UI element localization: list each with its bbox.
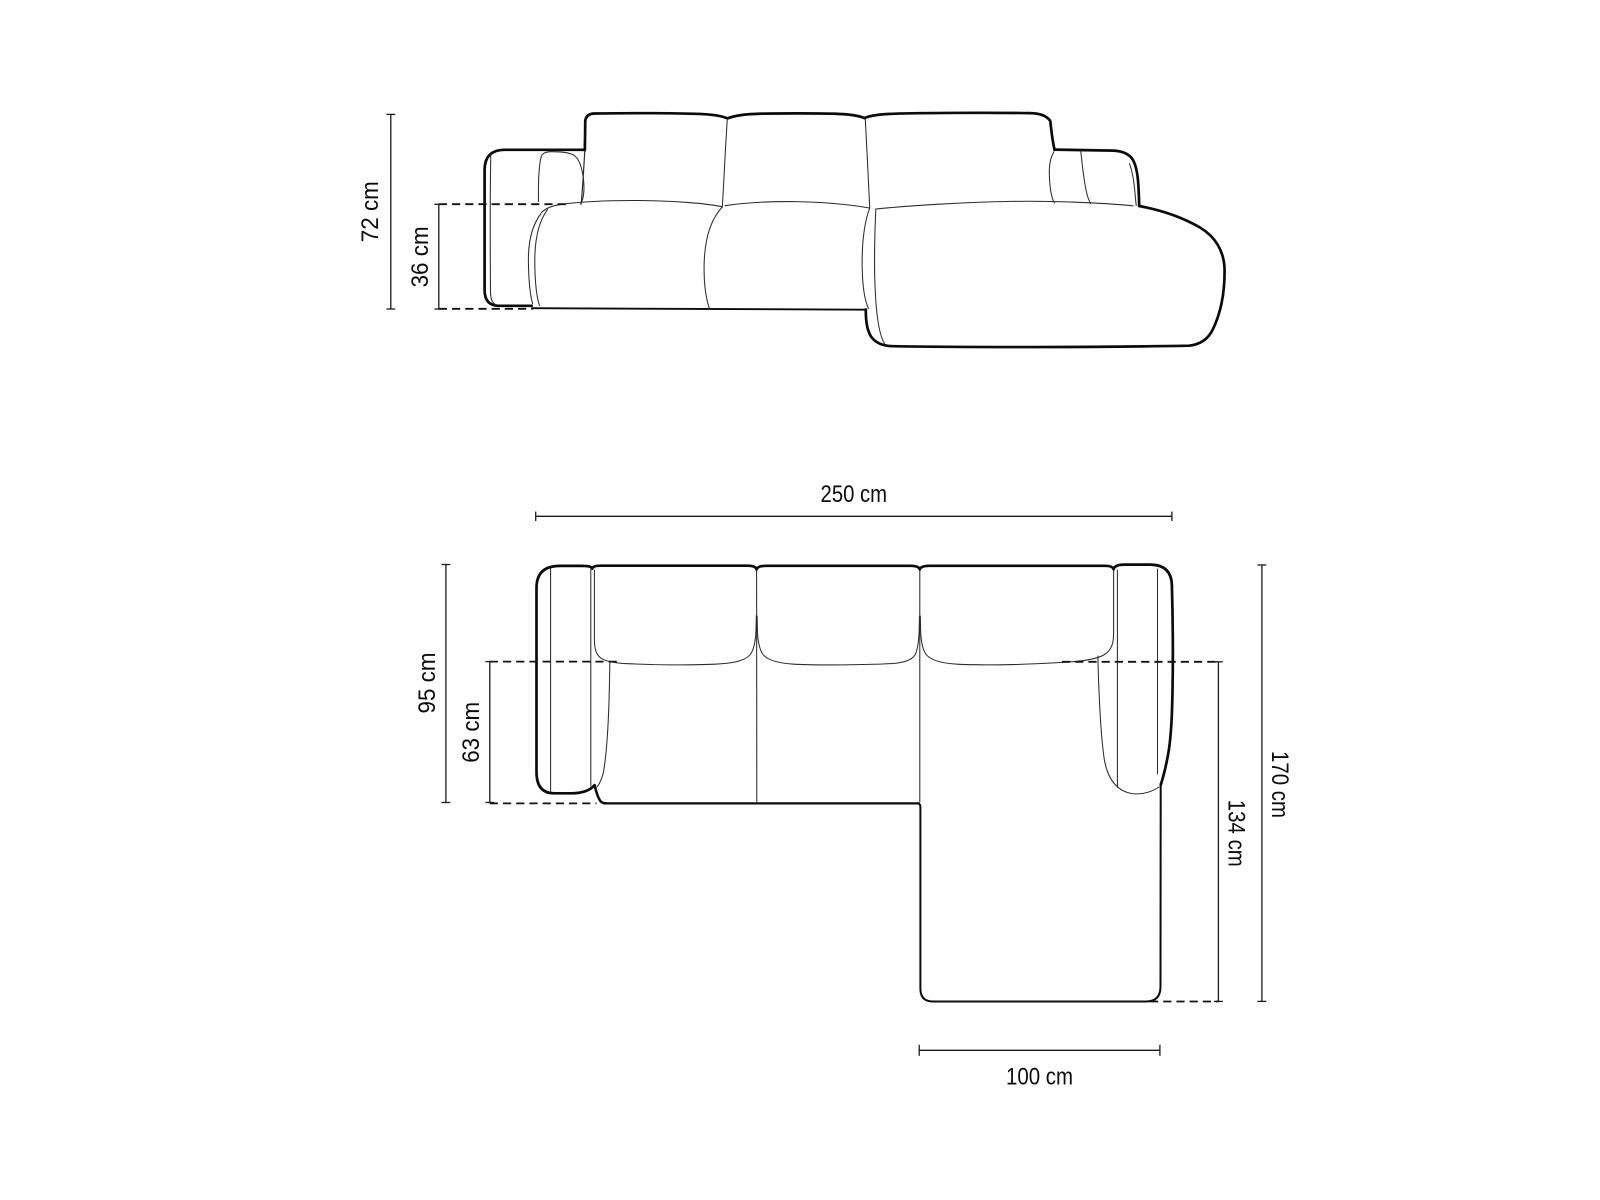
- svg-text:72 cm: 72 cm: [357, 181, 384, 242]
- svg-text:134 cm: 134 cm: [1222, 800, 1249, 867]
- svg-text:63 cm: 63 cm: [458, 702, 485, 763]
- svg-text:36 cm: 36 cm: [407, 226, 434, 287]
- svg-text:95 cm: 95 cm: [414, 653, 441, 714]
- svg-text:250 cm: 250 cm: [821, 481, 888, 508]
- svg-text:170 cm: 170 cm: [1266, 751, 1293, 818]
- svg-text:100 cm: 100 cm: [1006, 1063, 1073, 1090]
